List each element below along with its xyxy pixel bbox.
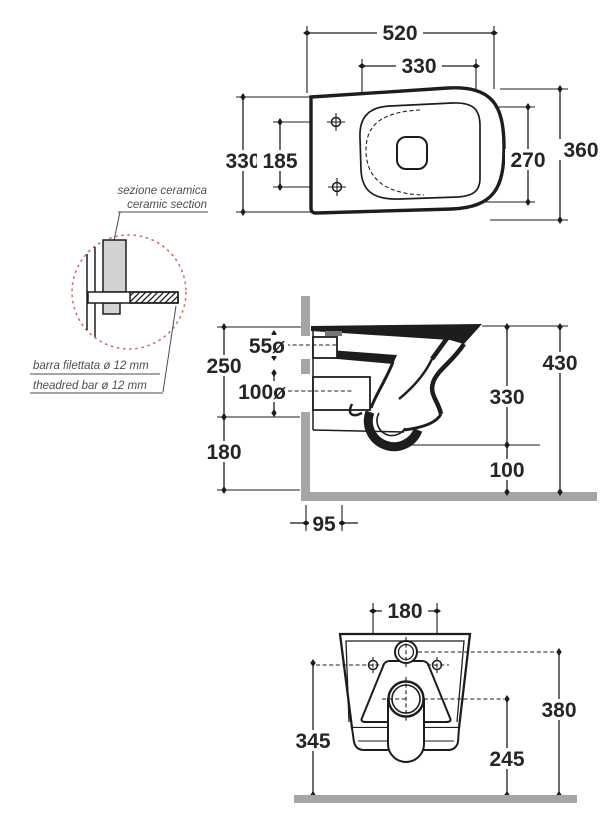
plan-view: 520 330 330 185 360 270 [220, 22, 605, 220]
callout-bar-it: barra filettata ø 12 mm [33, 360, 149, 372]
ceramic-section-lower [103, 303, 120, 314]
plan-width-label: 520 [382, 22, 417, 45]
plan-hole-spacing-label: 185 [262, 150, 297, 173]
ceramic-section-upper [103, 240, 126, 292]
callout-bar-en: theadred bar ø 12 mm [33, 380, 147, 392]
callout-title-en: ceramic section [127, 199, 207, 211]
side-upper-label: 250 [206, 355, 241, 378]
rear-floor-section [294, 795, 577, 803]
side-view: 250 55ø 100ø 180 330 430 100 95 [201, 296, 597, 536]
side-body-height-label: 330 [489, 386, 524, 409]
toilet-technical-drawing: 520 330 330 185 360 270 sezione ceramica… [0, 0, 614, 835]
threaded-bar-hatch [130, 292, 178, 303]
side-trap-height-label: 100 [489, 459, 524, 482]
plan-total-depth-label: 360 [563, 139, 598, 162]
wall-gap-inlet [300, 336, 311, 359]
plan-seat-width-label: 330 [401, 55, 436, 78]
plan-bowl-depth-label: 270 [510, 149, 545, 172]
bowl-left-wall [371, 362, 393, 408]
technical-drawing-page: 520 330 330 185 360 270 sezione ceramica… [0, 0, 614, 835]
rim-inner-section [432, 337, 448, 359]
outlet-box [313, 377, 370, 410]
side-lower-label: 180 [206, 441, 241, 464]
side-total-height-label: 430 [542, 352, 577, 375]
rear-inlet-height-label: 380 [541, 699, 576, 722]
plan-drain-outline [397, 137, 427, 169]
rear-view: 180 345 380 245 [290, 600, 582, 803]
floor-section [301, 492, 597, 501]
callout-bar-leader [163, 306, 176, 392]
rear-toilet-body [340, 634, 470, 762]
callout-title-it: sezione ceramica [118, 185, 207, 197]
base-bottom-edge [404, 414, 441, 430]
rear-hole-spacing-label: 180 [387, 600, 422, 623]
plan-depth-label: 330 [225, 150, 260, 173]
rim-shadow [325, 331, 342, 336]
rear-outlet-height-label: 245 [489, 748, 524, 771]
wall-gap-outlet [300, 374, 311, 412]
rear-hole-height-label: 345 [295, 730, 330, 753]
detail-callout: sezione ceramica ceramic section barra f… [30, 185, 208, 393]
side-floor-offset-label: 95 [312, 513, 336, 536]
side-inlet-label: 55ø [249, 335, 285, 358]
bowl-inner-curve [399, 359, 432, 399]
side-toilet-section [311, 324, 482, 447]
inlet-stub [313, 337, 337, 358]
side-outlet-label: 100ø [238, 381, 286, 404]
